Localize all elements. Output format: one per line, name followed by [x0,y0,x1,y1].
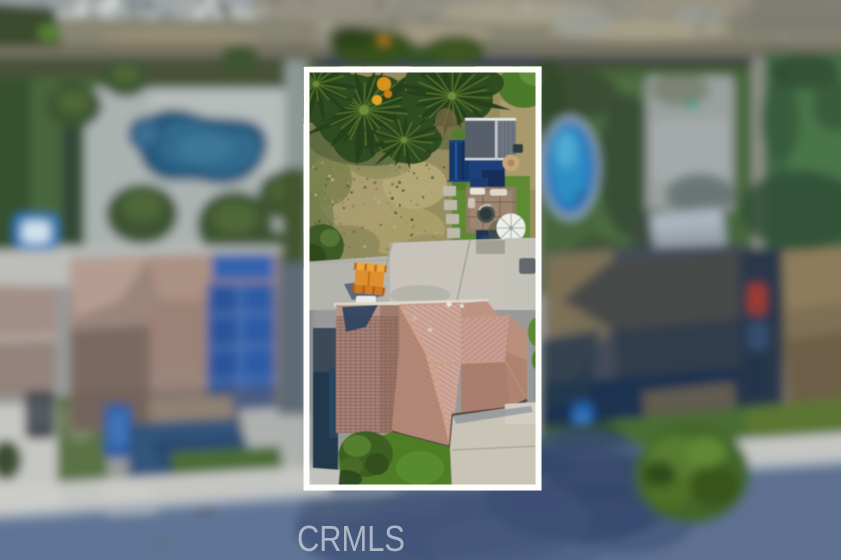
svg-text:CRMLS: CRMLS [297,518,405,559]
